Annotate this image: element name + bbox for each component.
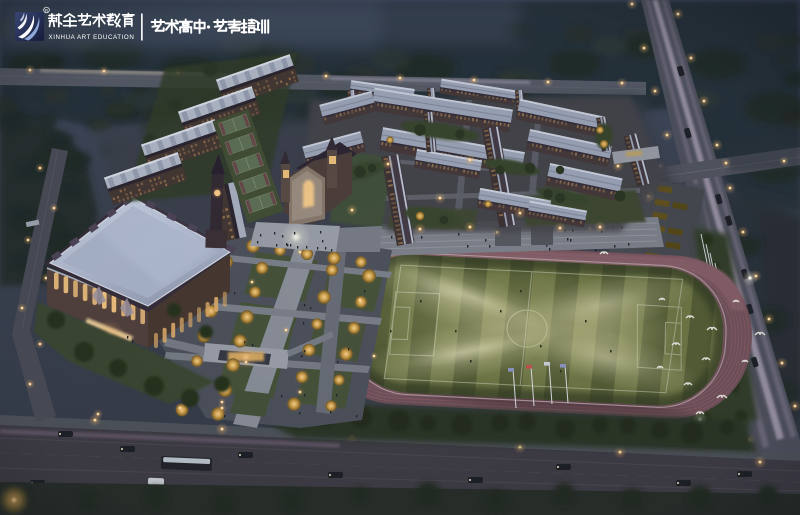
svg-text:R: R [45, 8, 48, 13]
svg-text:XINHUA ART EDUCATION: XINHUA ART EDUCATION [49, 34, 135, 41]
